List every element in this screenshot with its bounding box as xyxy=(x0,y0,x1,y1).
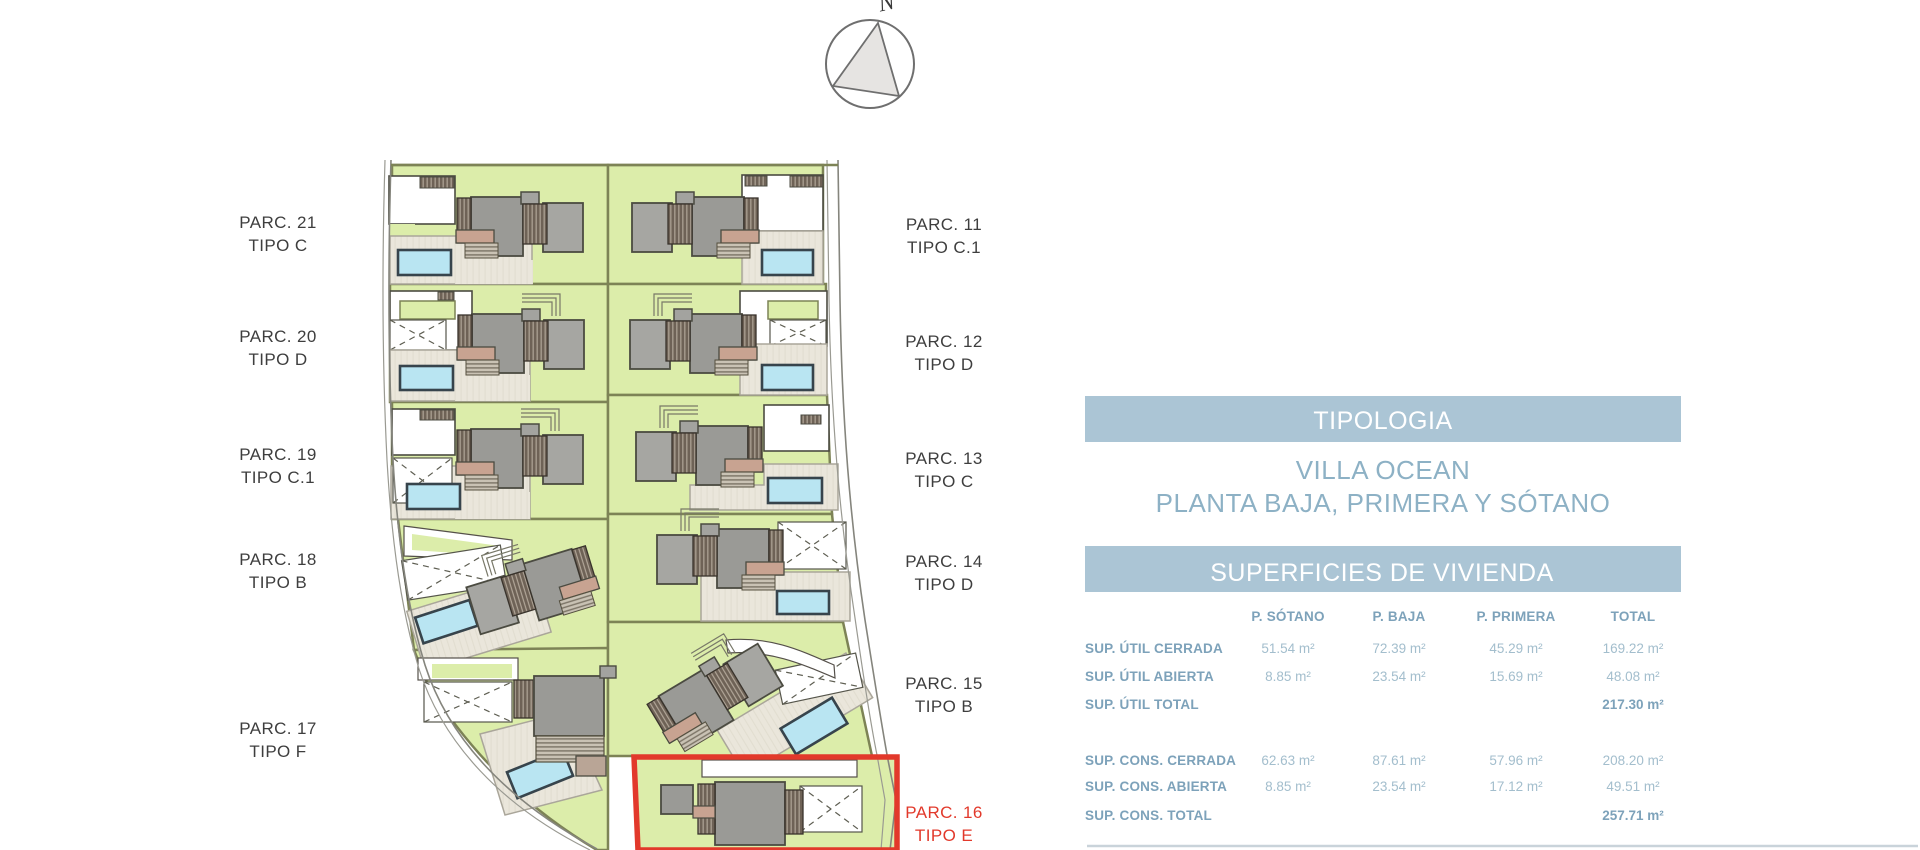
svg-text:SUP. CONS. CERRADA: SUP. CONS. CERRADA xyxy=(1085,753,1236,768)
svg-text:23.54 m²: 23.54 m² xyxy=(1372,669,1426,684)
svg-text:SUP. CONS. TOTAL: SUP. CONS. TOTAL xyxy=(1085,808,1212,823)
svg-text:SUPERFICIES DE VIVIENDA: SUPERFICIES DE VIVIENDA xyxy=(1210,559,1554,587)
svg-text:PARC. 16: PARC. 16 xyxy=(905,803,983,822)
svg-text:TOTAL: TOTAL xyxy=(1611,609,1656,624)
svg-text:PARC. 11: PARC. 11 xyxy=(906,215,982,234)
svg-text:SUP. ÚTIL CERRADA: SUP. ÚTIL CERRADA xyxy=(1085,641,1223,656)
svg-text:208.20 m²: 208.20 m² xyxy=(1603,753,1664,768)
svg-text:23.54 m²: 23.54 m² xyxy=(1372,779,1426,794)
svg-text:P. SÓTANO: P. SÓTANO xyxy=(1251,609,1324,624)
svg-text:51.54 m²: 51.54 m² xyxy=(1261,641,1315,656)
svg-text:169.22 m²: 169.22 m² xyxy=(1603,641,1664,656)
svg-text:TIPO F: TIPO F xyxy=(249,742,306,761)
svg-text:PARC. 13: PARC. 13 xyxy=(905,449,983,468)
svg-text:SUP. CONS. ABIERTA: SUP. CONS. ABIERTA xyxy=(1085,779,1227,794)
svg-text:PARC. 15: PARC. 15 xyxy=(905,674,983,693)
svg-text:17.12 m²: 17.12 m² xyxy=(1489,779,1543,794)
svg-text:48.08 m²: 48.08 m² xyxy=(1606,669,1660,684)
svg-text:TIPO C.1: TIPO C.1 xyxy=(241,468,315,487)
svg-text:45.29 m²: 45.29 m² xyxy=(1489,641,1543,656)
svg-text:TIPO B: TIPO B xyxy=(249,573,307,592)
svg-text:62.63 m²: 62.63 m² xyxy=(1261,753,1315,768)
svg-text:PARC. 19: PARC. 19 xyxy=(239,445,317,464)
svg-text:TIPOLOGIA: TIPOLOGIA xyxy=(1313,407,1452,435)
svg-text:P. BAJA: P. BAJA xyxy=(1373,609,1426,624)
svg-text:PARC. 12: PARC. 12 xyxy=(905,332,983,351)
svg-text:257.71 m²: 257.71 m² xyxy=(1602,808,1664,823)
svg-text:PARC. 17: PARC. 17 xyxy=(239,719,317,738)
svg-text:TIPO D: TIPO D xyxy=(248,350,307,369)
svg-text:SUP. ÚTIL TOTAL: SUP. ÚTIL TOTAL xyxy=(1085,697,1199,712)
svg-text:TIPO C.1: TIPO C.1 xyxy=(907,238,981,257)
svg-text:PARC. 14: PARC. 14 xyxy=(905,552,983,571)
svg-text:PARC. 18: PARC. 18 xyxy=(239,550,317,569)
svg-text:PARC. 20: PARC. 20 xyxy=(239,327,317,346)
svg-text:TIPO D: TIPO D xyxy=(914,355,973,374)
svg-text:TIPO C: TIPO C xyxy=(248,236,307,255)
svg-text:49.51 m²: 49.51 m² xyxy=(1606,779,1660,794)
svg-text:8.85 m²: 8.85 m² xyxy=(1265,779,1311,794)
svg-text:N: N xyxy=(875,0,899,18)
svg-text:57.96 m²: 57.96 m² xyxy=(1489,753,1543,768)
svg-text:PLANTA BAJA, PRIMERA Y SÓTANO: PLANTA BAJA, PRIMERA Y SÓTANO xyxy=(1156,488,1611,518)
svg-text:87.61 m²: 87.61 m² xyxy=(1372,753,1426,768)
svg-text:P. PRIMERA: P. PRIMERA xyxy=(1476,609,1555,624)
svg-text:72.39 m²: 72.39 m² xyxy=(1372,641,1426,656)
svg-text:TIPO E: TIPO E xyxy=(915,826,973,845)
svg-text:8.85 m²: 8.85 m² xyxy=(1265,669,1311,684)
svg-text:TIPO B: TIPO B xyxy=(915,697,973,716)
svg-text:TIPO C: TIPO C xyxy=(914,472,973,491)
svg-text:SUP. ÚTIL ABIERTA: SUP. ÚTIL ABIERTA xyxy=(1085,669,1214,684)
svg-text:217.30 m²: 217.30 m² xyxy=(1602,697,1664,712)
svg-text:TIPO D: TIPO D xyxy=(914,575,973,594)
svg-text:15.69 m²: 15.69 m² xyxy=(1489,669,1543,684)
svg-text:VILLA OCEAN: VILLA OCEAN xyxy=(1296,455,1471,485)
svg-text:PARC. 21: PARC. 21 xyxy=(239,213,317,232)
